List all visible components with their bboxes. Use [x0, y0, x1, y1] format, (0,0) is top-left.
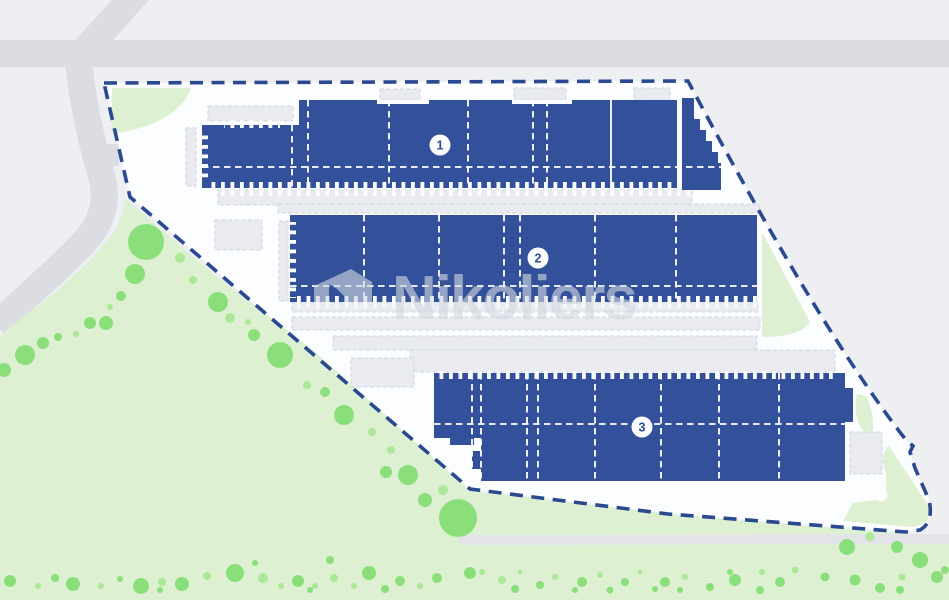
svg-text:3: 3	[639, 421, 646, 435]
svg-text:Nikoliers: Nikoliers	[392, 264, 636, 333]
svg-text:1: 1	[437, 139, 444, 153]
